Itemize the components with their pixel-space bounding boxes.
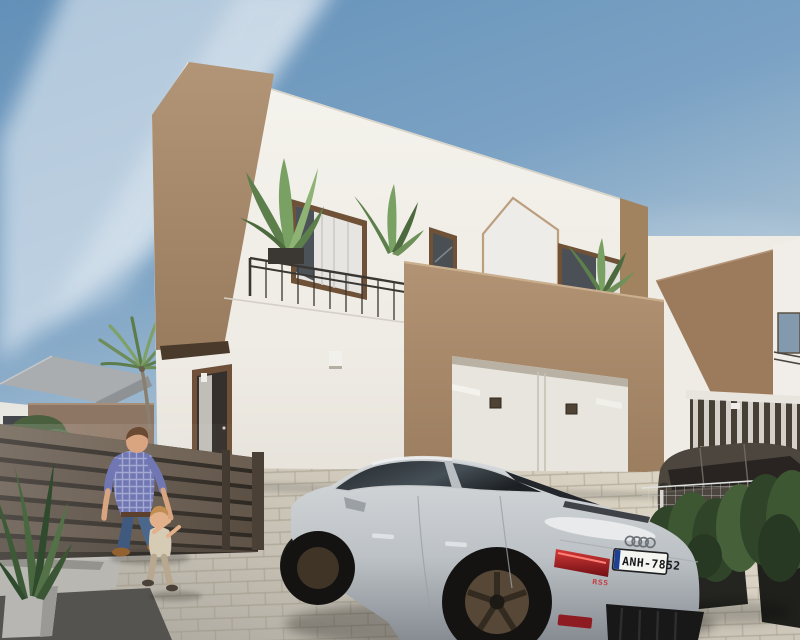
render-viewport: ANH-7852 RS5 [0,0,800,640]
child-shoe-left [142,580,154,587]
wall-lamp-neighbor [731,403,740,409]
child-leg-left [150,557,154,580]
wall-lamp-shade [329,366,342,369]
rear-hub [490,595,505,610]
child-shoe-right [166,585,178,592]
man-shoe-left [112,548,130,557]
child-shadow [150,591,202,601]
rs5-badge: RS5 [592,578,609,587]
man-belt [121,512,151,517]
wall-lamp [329,351,342,366]
neighbor-window [778,313,800,353]
door-lock-plate-left [490,398,501,408]
door-lock-plate-right [566,404,577,414]
wall-lamp-small [201,373,207,382]
garage-volume [404,262,664,484]
front-rim [297,547,339,589]
palm-crown [139,366,145,372]
